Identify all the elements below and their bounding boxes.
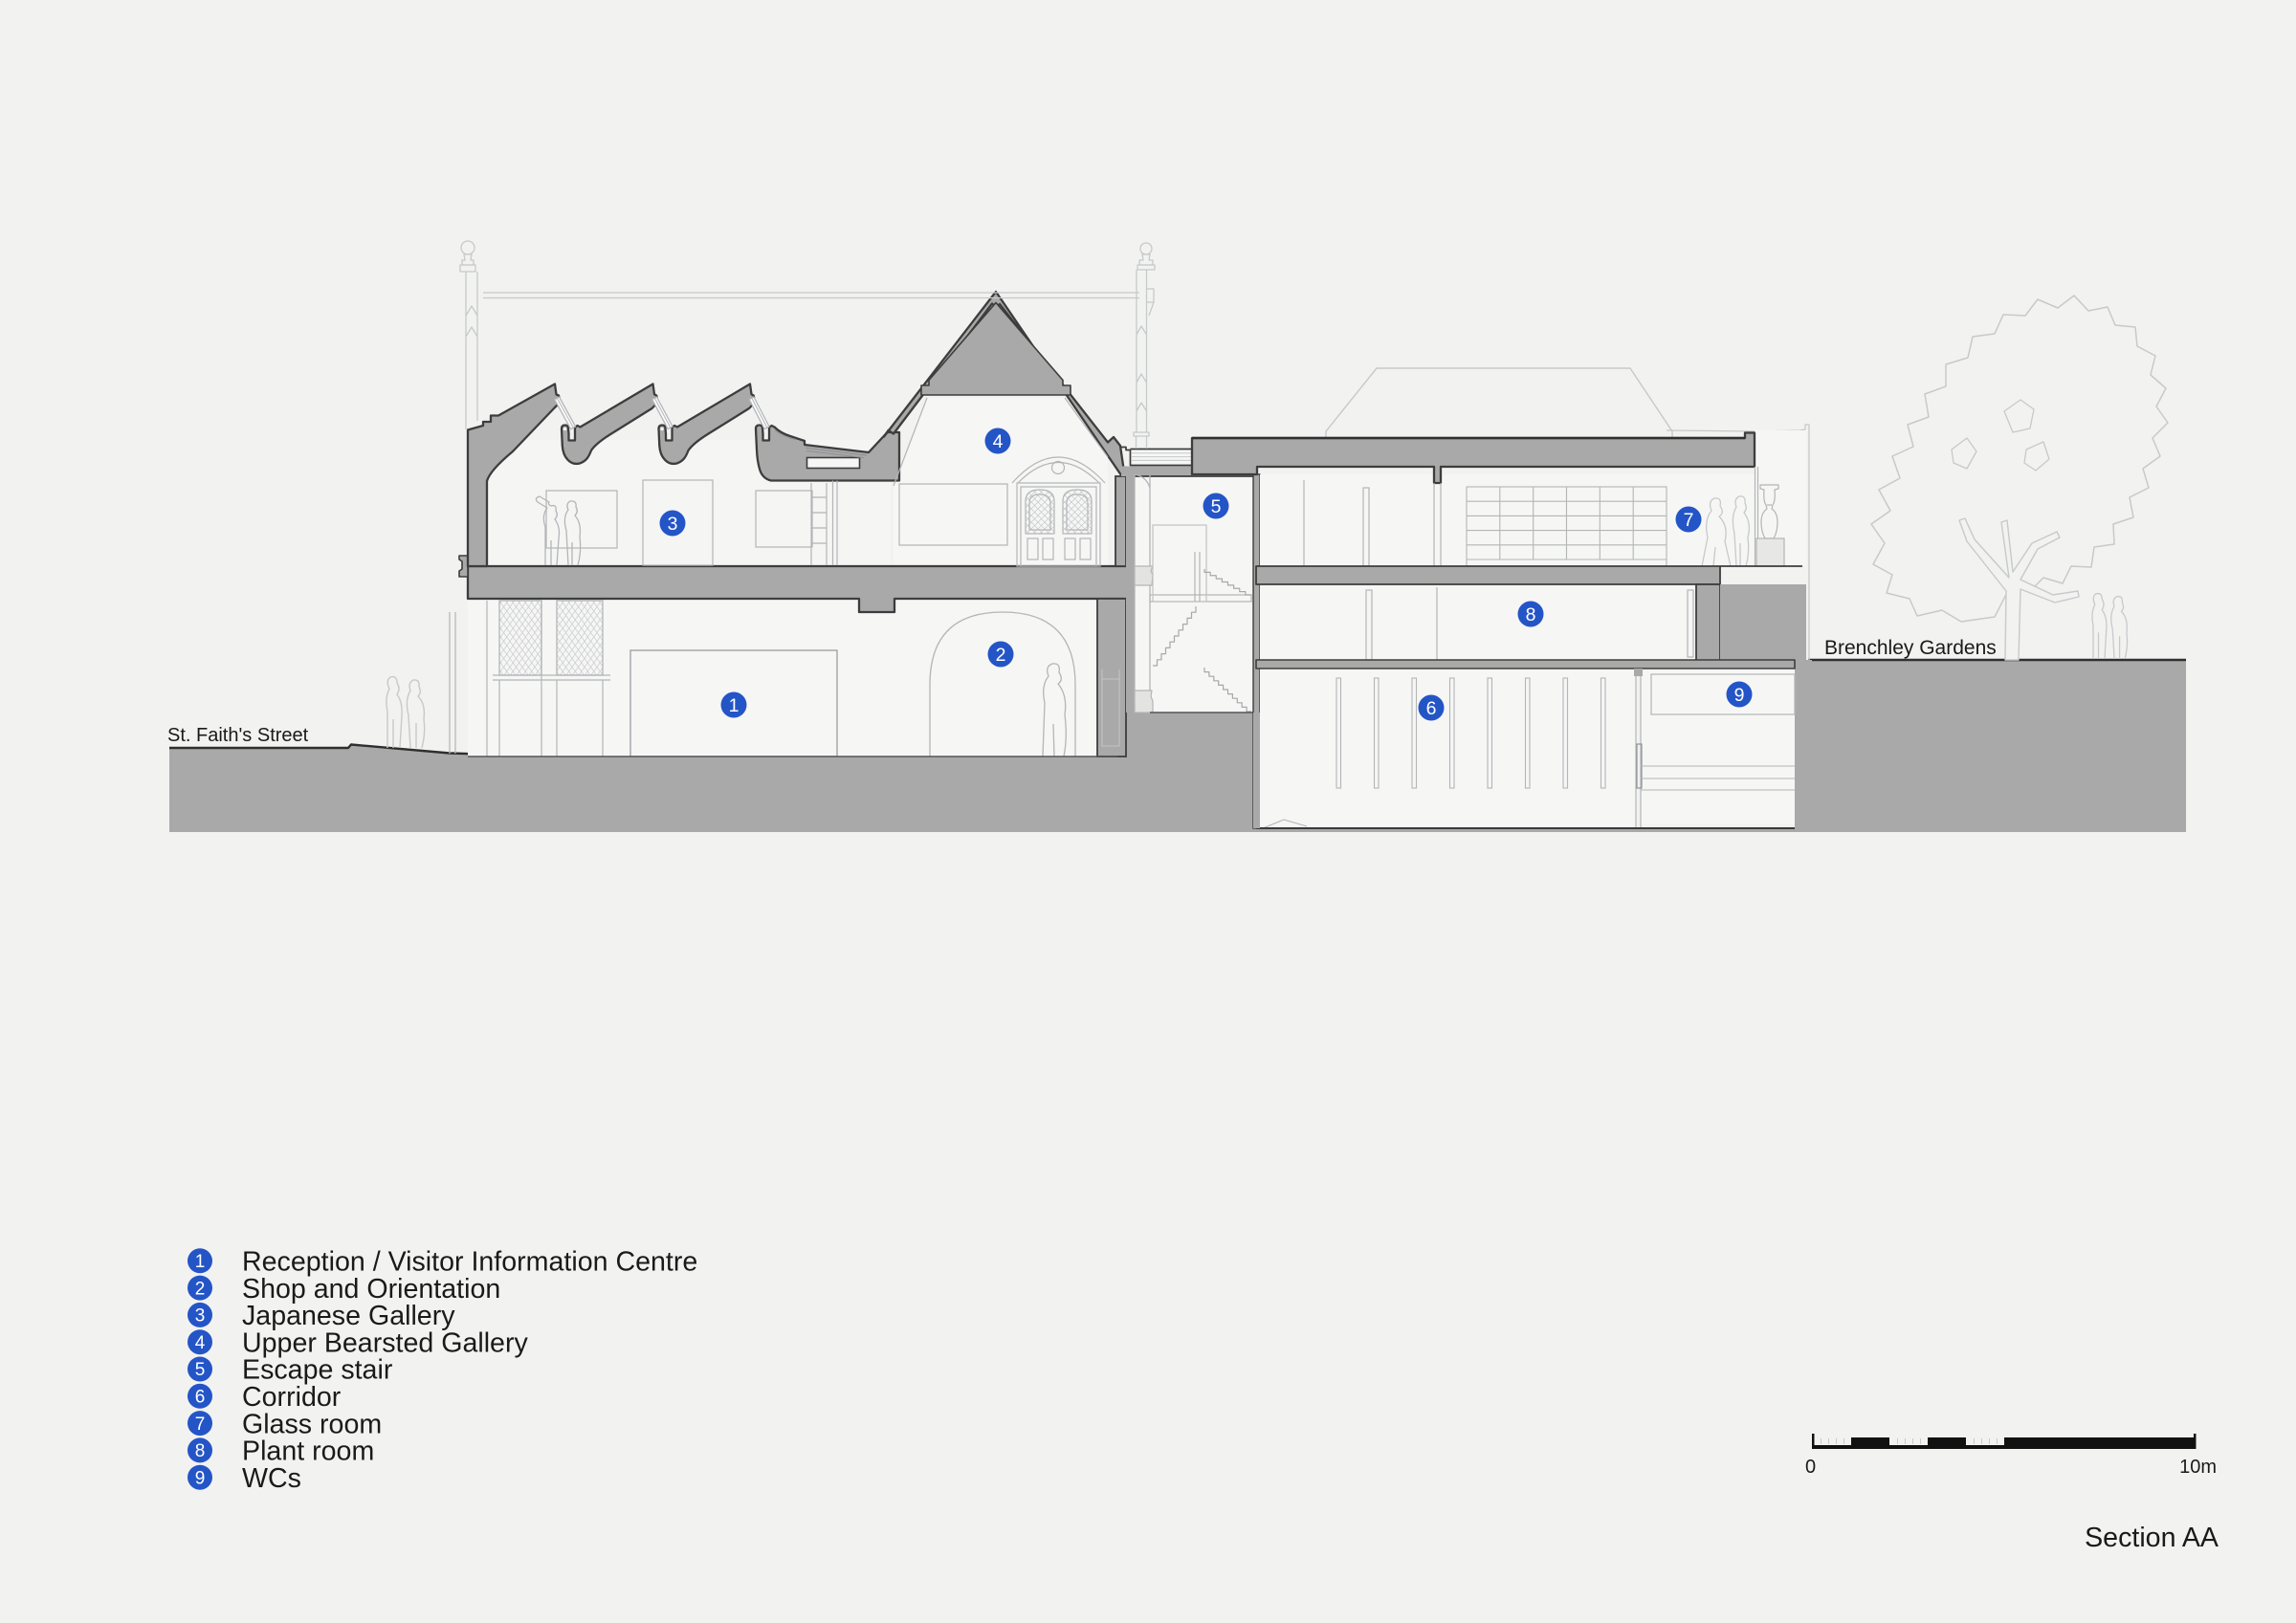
- svg-text:7: 7: [195, 1415, 206, 1435]
- svg-text:Escape stair: Escape stair: [242, 1355, 393, 1386]
- svg-text:7: 7: [1684, 510, 1694, 531]
- svg-text:3: 3: [668, 514, 678, 535]
- svg-text:Section AA: Section AA: [2085, 1523, 2219, 1553]
- svg-text:Japanese Gallery: Japanese Gallery: [242, 1301, 455, 1331]
- svg-text:3: 3: [195, 1306, 206, 1327]
- svg-text:2: 2: [996, 645, 1006, 666]
- svg-text:Brenchley Gardens: Brenchley Gardens: [1824, 637, 1997, 659]
- svg-text:8: 8: [1526, 604, 1536, 625]
- svg-text:9: 9: [1734, 685, 1745, 706]
- svg-text:8: 8: [195, 1441, 206, 1461]
- svg-text:Shop and Orientation: Shop and Orientation: [242, 1274, 500, 1305]
- svg-text:6: 6: [195, 1388, 206, 1408]
- svg-text:1: 1: [729, 695, 740, 716]
- svg-text:1: 1: [195, 1252, 206, 1272]
- svg-text:4: 4: [993, 431, 1004, 452]
- svg-text:Reception / Visitor Informatio: Reception / Visitor Information Centre: [242, 1247, 697, 1278]
- svg-text:WCs: WCs: [242, 1463, 301, 1494]
- svg-text:9: 9: [195, 1468, 206, 1488]
- svg-text:Corridor: Corridor: [242, 1382, 342, 1413]
- svg-text:Glass room: Glass room: [242, 1409, 382, 1439]
- svg-text:St. Faith's Street: St. Faith's Street: [167, 725, 309, 746]
- svg-text:5: 5: [195, 1360, 206, 1380]
- svg-text:10m: 10m: [2179, 1457, 2217, 1478]
- svg-text:4: 4: [195, 1333, 206, 1353]
- svg-text:Upper Bearsted Gallery: Upper Bearsted Gallery: [242, 1327, 528, 1358]
- svg-text:Plant room: Plant room: [242, 1437, 374, 1467]
- svg-text:5: 5: [1211, 496, 1222, 517]
- svg-text:0: 0: [1805, 1457, 1816, 1478]
- svg-text:6: 6: [1426, 698, 1437, 719]
- svg-text:2: 2: [195, 1279, 206, 1299]
